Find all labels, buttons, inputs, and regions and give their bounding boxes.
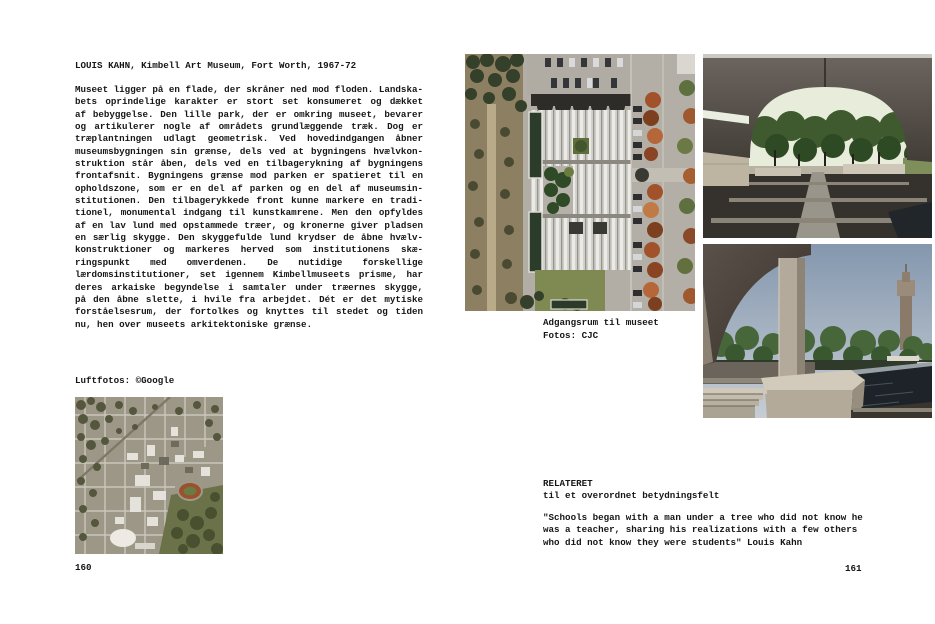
body-line: opholdszone, som er en del af parken og … [75,183,423,195]
quote-line: "Schools began with a man under a tree w… [543,512,863,524]
museum-aerial-image [465,54,695,311]
body-line: på den åbne slette, i hvile fra arbejdet… [75,294,423,306]
body-line: tionel, monumental indgang til kunstkamr… [75,207,423,219]
city-aerial-photo [75,397,223,554]
quote-line: who did not know they were students" Lou… [543,537,863,549]
city-aerial-image [75,397,223,554]
photo-caption-line2: Fotos: CJC [543,330,659,343]
pool-photo [703,244,932,418]
body-line: ringspunkt med omverdenen. De nutidige f… [75,257,423,269]
body-line: lærdomsinstitutioner, set igennem Kimbel… [75,269,423,281]
body-paragraph: Museet ligger på en flade, der skråner n… [75,84,423,331]
body-line: struktion står åben, dels ved en tilbage… [75,158,423,170]
related-block: RELATERET til et overordnet betydningsfe… [543,478,719,503]
body-line: bets oprindelige karakter er stort set k… [75,96,423,108]
pool-image [703,244,932,418]
related-heading: RELATERET [543,478,719,490]
page-title: LOUIS KAHN, Kimbell Art Museum, Fort Wor… [75,60,435,72]
portico-photo [703,54,932,238]
body-line: forståelsesrum, der fortolkes og knyttes… [75,306,423,318]
quote-line: was a teacher, sharing his realizations … [543,524,863,536]
page-number-right: 161 [845,563,862,574]
body-line: af en lav lund med opstammede træer, og … [75,220,423,232]
related-subheading: til et overordnet betydningsfelt [543,490,719,502]
book-spread: LOUIS KAHN, Kimbell Art Museum, Fort Wor… [0,0,935,624]
body-line: frontafsnit. Bygningens grænse mod parke… [75,170,423,182]
body-line: af bebyggelse. Den lille park, der er om… [75,109,423,121]
photo-caption-line1: Adgangsrum til museet [543,317,659,330]
body-line: Museet ligger på en flade, der skråner n… [75,84,423,96]
body-line: nu, hen over museets arkitektoniske græn… [75,319,423,331]
body-line: museumsbygningen sin grænse, dels ved at… [75,146,423,158]
museum-aerial-photo [465,54,695,311]
body-line: og artikulerer nogle af områdets grundlæ… [75,121,423,133]
body-line: stitutionen. Den tilbagerykkede front ku… [75,195,423,207]
body-line: en særlig skygge. Den skyggefulde lund k… [75,232,423,244]
aerial-photo-caption: Luftfotos: ©Google [75,375,174,386]
portico-image [703,54,932,238]
body-line: konstruktioner og markeres herved som in… [75,244,423,256]
page-number-left: 160 [75,562,92,573]
body-line: træplantningen udlagt geometrisk. Ved ho… [75,133,423,145]
kahn-quote: "Schools began with a man under a tree w… [543,512,863,549]
body-line: deres arkaiske begyndelse i samtaler und… [75,282,423,294]
photo-caption: Adgangsrum til museet Fotos: CJC [543,317,659,343]
